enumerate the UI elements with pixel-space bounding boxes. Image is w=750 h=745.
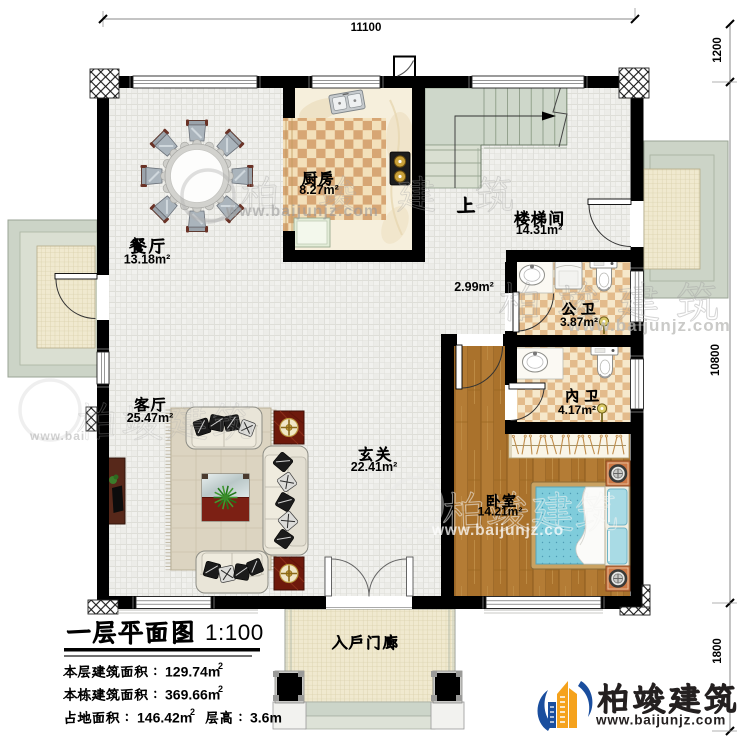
svg-text:369.66m: 369.66m — [165, 687, 220, 703]
svg-text:1800: 1800 — [712, 638, 724, 664]
svg-text:1200: 1200 — [712, 37, 724, 63]
svg-text:14.21m²: 14.21m² — [478, 505, 523, 519]
svg-text:22.41m²: 22.41m² — [351, 460, 398, 474]
svg-text:4.17m²: 4.17m² — [558, 403, 596, 417]
svg-text:3.6m: 3.6m — [250, 710, 282, 726]
svg-text:www.baijunjz.com: www.baijunjz.com — [225, 203, 379, 220]
svg-text:11100: 11100 — [351, 22, 382, 34]
svg-text:8.27m²: 8.27m² — [299, 183, 339, 197]
svg-text:2: 2 — [190, 707, 195, 717]
svg-text:1:100: 1:100 — [205, 620, 264, 645]
svg-text:2.99m²: 2.99m² — [454, 280, 494, 294]
svg-text:www.baijunjz.co: www.baijunjz.co — [431, 522, 564, 539]
svg-text:146.42m: 146.42m — [137, 710, 192, 726]
svg-text:129.74m: 129.74m — [165, 664, 220, 680]
svg-text:www.bai: www.bai — [29, 429, 85, 443]
svg-text:2: 2 — [218, 661, 223, 671]
svg-text:10800: 10800 — [710, 344, 722, 376]
svg-text:25.47m²: 25.47m² — [127, 411, 174, 425]
svg-text:14.31m²: 14.31m² — [516, 223, 563, 237]
svg-text:2: 2 — [218, 684, 223, 694]
svg-text:3.87m²: 3.87m² — [560, 315, 598, 329]
svg-text:13.18m²: 13.18m² — [124, 253, 171, 267]
svg-text:www.baijunjz.com: www.baijunjz.com — [595, 713, 726, 728]
